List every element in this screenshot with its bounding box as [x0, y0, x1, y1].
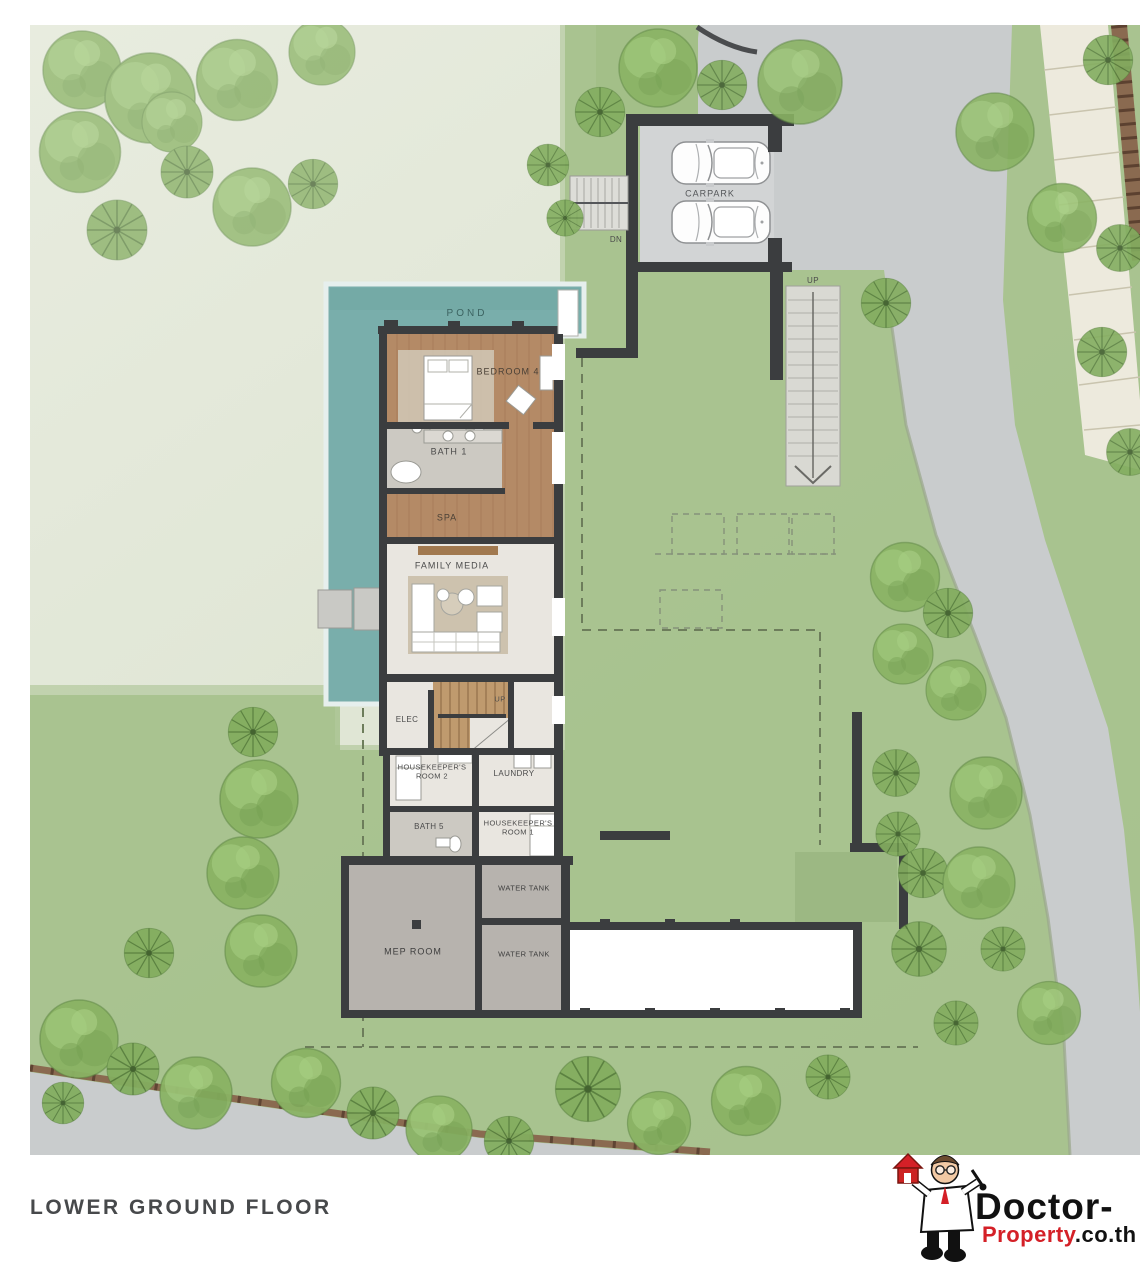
house-icon — [894, 1154, 922, 1183]
car-1 — [672, 139, 770, 187]
site-plan-page: POND BEDROOM 4 BATH 1 SPA FAMILY MEDIA E… — [0, 0, 1140, 1262]
doctor-mascot — [894, 1154, 987, 1262]
housekeeper2-label: HOUSEKEEPER'SROOM 2 — [398, 763, 467, 782]
unexcavated-room — [568, 928, 858, 1014]
water-tank-upper-label: WATER TANK — [498, 884, 550, 893]
housekeeper1-label: HOUSEKEEPER'SROOM 1 — [484, 819, 553, 838]
mep-room-label: MEP ROOM — [384, 947, 442, 958]
site-plan-drawing — [0, 0, 1140, 1262]
carpark-label: CARPARK — [685, 189, 735, 200]
interior-stairs — [433, 680, 511, 752]
elec-label: ELEC — [396, 715, 419, 725]
laundry-label: LAUNDRY — [494, 769, 535, 779]
water-tank-lower-label: WATER TANK — [498, 950, 550, 959]
bath5-label: BATH 5 — [414, 822, 444, 832]
family-media-label: FAMILY MEDIA — [415, 561, 489, 572]
garden-terrace — [795, 852, 897, 922]
floor-title: LOWER GROUND FLOOR — [30, 1196, 332, 1220]
bedroom4-label: BEDROOM 4 — [476, 367, 539, 378]
stairs-up-label: UP — [494, 695, 505, 704]
bath5-floor — [388, 812, 478, 860]
watermark-property-text: Property — [982, 1222, 1075, 1247]
car-2 — [672, 198, 770, 246]
pond-label: POND — [447, 308, 488, 320]
watermark-domain-suffix: .co.th — [1075, 1222, 1137, 1247]
garden-up-stairs — [786, 286, 840, 486]
bath1-label: BATH 1 — [431, 447, 468, 458]
spa-label: SPA — [437, 513, 457, 524]
dn-label: DN — [610, 235, 622, 245]
garden-up-label: UP — [807, 276, 819, 286]
watermark-brand-line2: Property.co.th — [982, 1222, 1137, 1248]
